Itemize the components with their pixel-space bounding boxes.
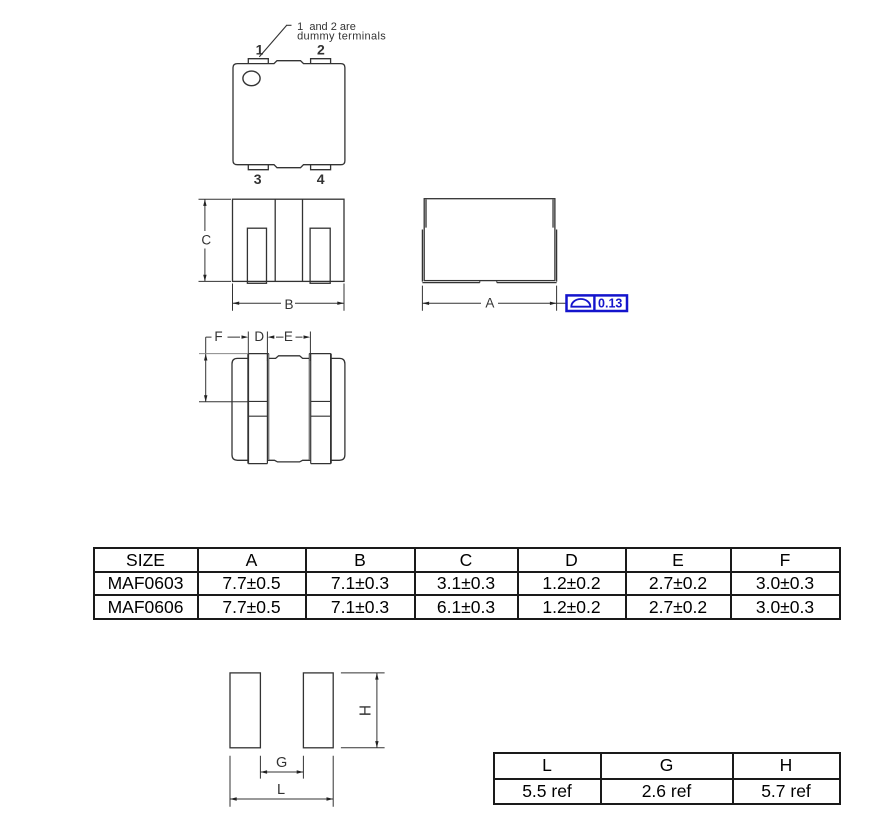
svg-text:H: H bbox=[357, 705, 374, 716]
svg-text:3: 3 bbox=[254, 171, 262, 187]
svg-text:2: 2 bbox=[317, 41, 325, 57]
svg-text:4: 4 bbox=[317, 171, 325, 187]
svg-text:L: L bbox=[277, 782, 285, 798]
svg-text:0.13: 0.13 bbox=[598, 297, 622, 311]
svg-text:A: A bbox=[485, 296, 494, 311]
svg-text:E: E bbox=[284, 329, 293, 344]
svg-text:D: D bbox=[254, 329, 264, 344]
svg-text:G: G bbox=[276, 755, 287, 771]
svg-text:B: B bbox=[284, 297, 293, 312]
svg-text:dummy terminals: dummy terminals bbox=[297, 31, 386, 43]
svg-text:C: C bbox=[201, 232, 211, 247]
svg-text:F: F bbox=[214, 329, 222, 344]
svg-text:1: 1 bbox=[256, 41, 264, 57]
